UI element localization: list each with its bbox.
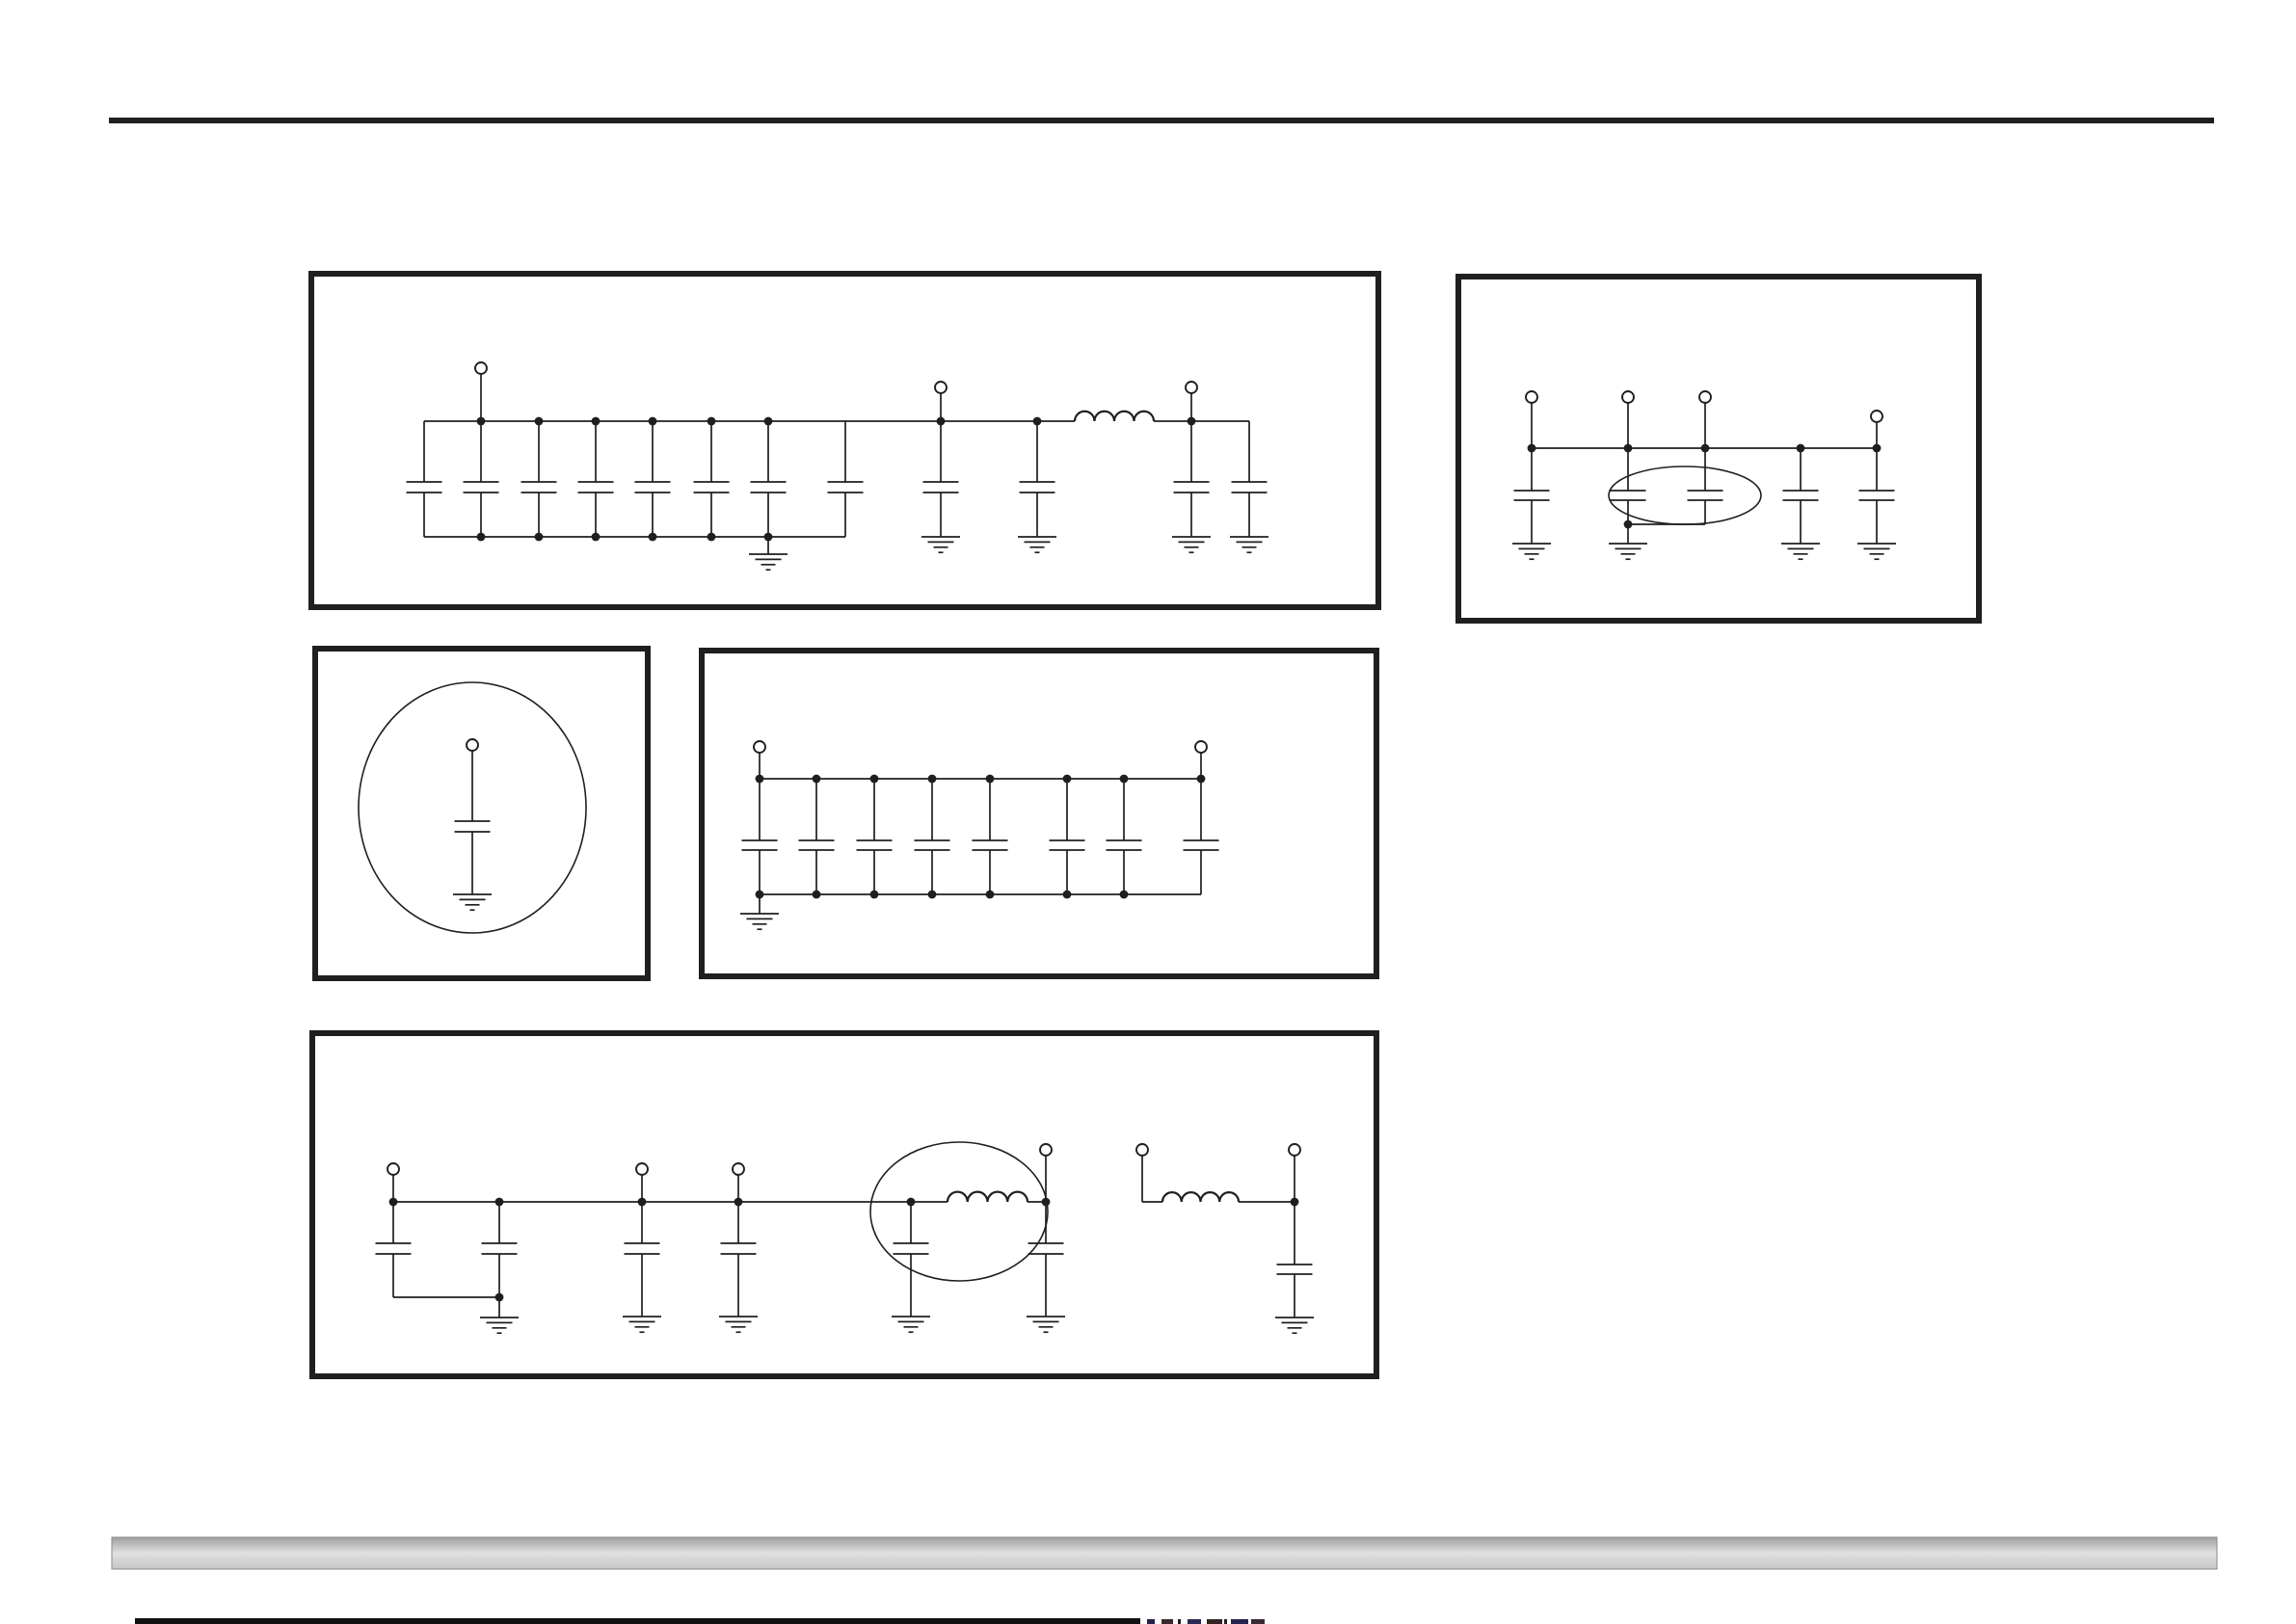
terminal-circle [1526,391,1537,403]
capacitor-symbol [482,1243,518,1254]
capacitor-symbol [635,482,671,493]
annotation-ellipse [870,1142,1048,1281]
capacitor-symbol [915,840,950,850]
junction-dot [928,775,937,784]
ground-symbol [749,554,788,570]
junction-dot [756,891,764,899]
junction-dot [1188,417,1196,426]
capacitor-symbol [625,1243,660,1254]
ground-symbol [453,894,492,910]
junction-dot [870,891,879,899]
footer-black-bar [135,1618,1140,1624]
junction-dot [477,417,486,426]
junction-dot [1624,520,1633,529]
capacitor-symbol [828,482,864,493]
junction-dot [495,1198,504,1207]
terminal-circle [1289,1144,1300,1156]
ground-symbol [1018,537,1056,552]
junction-dot [937,417,946,426]
capacitor-symbol [799,840,835,850]
ground-symbol [623,1317,661,1332]
ground-symbol [480,1318,519,1333]
junction-dot [1873,444,1882,453]
ground-symbol [1172,537,1211,552]
ground-symbol [1781,544,1820,559]
capacitor-symbol [1277,1265,1313,1274]
terminal-circle [475,362,487,374]
junction-dot [1033,417,1042,426]
inductor-symbol [1162,1192,1239,1202]
junction-dot [907,1198,916,1207]
footer-fineprint-mark [1178,1619,1181,1624]
inductor-symbol [1075,412,1154,421]
capacitor-symbol [1174,482,1210,493]
junction-dot [592,417,601,426]
schematic-box-cap-bank-top-right [1458,277,1979,621]
top-rule [109,118,2214,123]
junction-dot [649,417,657,426]
capacitor-symbol [1783,491,1819,500]
junction-dot [1063,775,1072,784]
capacitor-symbol [694,482,730,493]
junction-dot [1701,444,1710,453]
capacitor-symbol [1020,482,1055,493]
capacitor-symbol [521,482,557,493]
footer-gray-bar [112,1537,2217,1569]
footer-fineprint-mark [1161,1619,1173,1624]
capacitor-symbol [376,1243,412,1254]
terminal-circle [1040,1144,1052,1156]
junction-dot [734,1198,743,1207]
footer-fineprint-mark [1188,1619,1201,1624]
capacitor-symbol [973,840,1008,850]
junction-dot [986,775,995,784]
ground-symbol [892,1317,930,1332]
capacitor-symbol [455,821,491,832]
ground-symbol [1512,544,1551,559]
capacitor-symbol [857,840,893,850]
schematic-box-cap-ladder-middle [702,651,1376,976]
terminal-circle [1136,1144,1148,1156]
junction-dot [389,1198,398,1207]
junction-dot [1797,444,1805,453]
junction-dot [1063,891,1072,899]
junction-dot [870,775,879,784]
box-border [312,1033,1376,1376]
terminal-circle [636,1163,648,1175]
junction-dot [707,417,716,426]
terminal-circle [733,1163,744,1175]
footer-fineprint-mark [1251,1619,1265,1624]
junction-dot [1042,1198,1051,1207]
ground-symbol [921,537,960,552]
terminal-circle [467,739,478,751]
capacitor-symbol [751,482,787,493]
capacitor-symbol [721,1243,757,1254]
junction-dot [986,891,995,899]
capacitor-symbol [1050,840,1085,850]
capacitor-symbol [1611,491,1646,500]
manual-schematic-page [0,0,2296,1624]
terminal-circle [1622,391,1634,403]
junction-dot [649,533,657,542]
terminal-circle [935,382,947,393]
capacitor-symbol [1107,840,1142,850]
terminal-circle [1699,391,1711,403]
junction-dot [638,1198,647,1207]
junction-dot [813,891,821,899]
junction-dot [764,533,773,542]
footer-fineprint-mark [1231,1619,1248,1624]
terminal-circle [387,1163,399,1175]
terminal-circle [754,741,765,753]
capacitor-symbol [894,1243,929,1254]
capacitor-symbol [1688,491,1723,500]
junction-dot [477,533,486,542]
ground-symbol [1857,544,1896,559]
junction-dot [1120,891,1129,899]
capacitor-symbol [1514,491,1550,500]
schematic-box-lc-filters-bottom [312,1033,1376,1376]
junction-dot [535,533,544,542]
box-border [702,651,1376,976]
terminal-circle [1186,382,1197,393]
junction-dot [1197,775,1206,784]
terminal-circle [1871,411,1882,422]
inductor-symbol [948,1192,1028,1202]
ground-symbol [740,914,779,929]
junction-dot [1528,444,1536,453]
footer-fineprint-mark [1207,1619,1222,1624]
schematic-box-filter-bank-top-left [311,274,1378,607]
junction-dot [592,533,601,542]
ground-symbol [1027,1317,1065,1332]
capacitor-symbol [1232,482,1268,493]
junction-dot [1624,444,1633,453]
box-border [315,649,648,978]
ground-symbol [719,1317,758,1332]
capacitor-symbol [407,482,442,493]
junction-dot [1291,1198,1299,1207]
junction-dot [764,417,773,426]
capacitor-symbol [464,482,499,493]
junction-dot [535,417,544,426]
junction-dot [495,1293,504,1302]
capacitor-symbol [923,482,959,493]
capacitor-symbol [578,482,614,493]
junction-dot [1120,775,1129,784]
capacitor-symbol [1859,491,1895,500]
junction-dot [756,775,764,784]
ground-symbol [1275,1318,1314,1333]
capacitor-symbol [1184,840,1219,850]
schematic-canvas [0,0,2296,1624]
annotation-ellipse [1609,466,1761,524]
capacitor-symbol [742,840,778,850]
footer-fineprint-mark [1224,1619,1227,1624]
junction-dot [928,891,937,899]
junction-dot [707,533,716,542]
footer-fineprint-mark [1147,1619,1155,1624]
junction-dot [813,775,821,784]
ground-symbol [1230,537,1268,552]
schematic-box-single-cap-circle [315,649,648,978]
terminal-circle [1195,741,1207,753]
ground-symbol [1609,544,1647,559]
